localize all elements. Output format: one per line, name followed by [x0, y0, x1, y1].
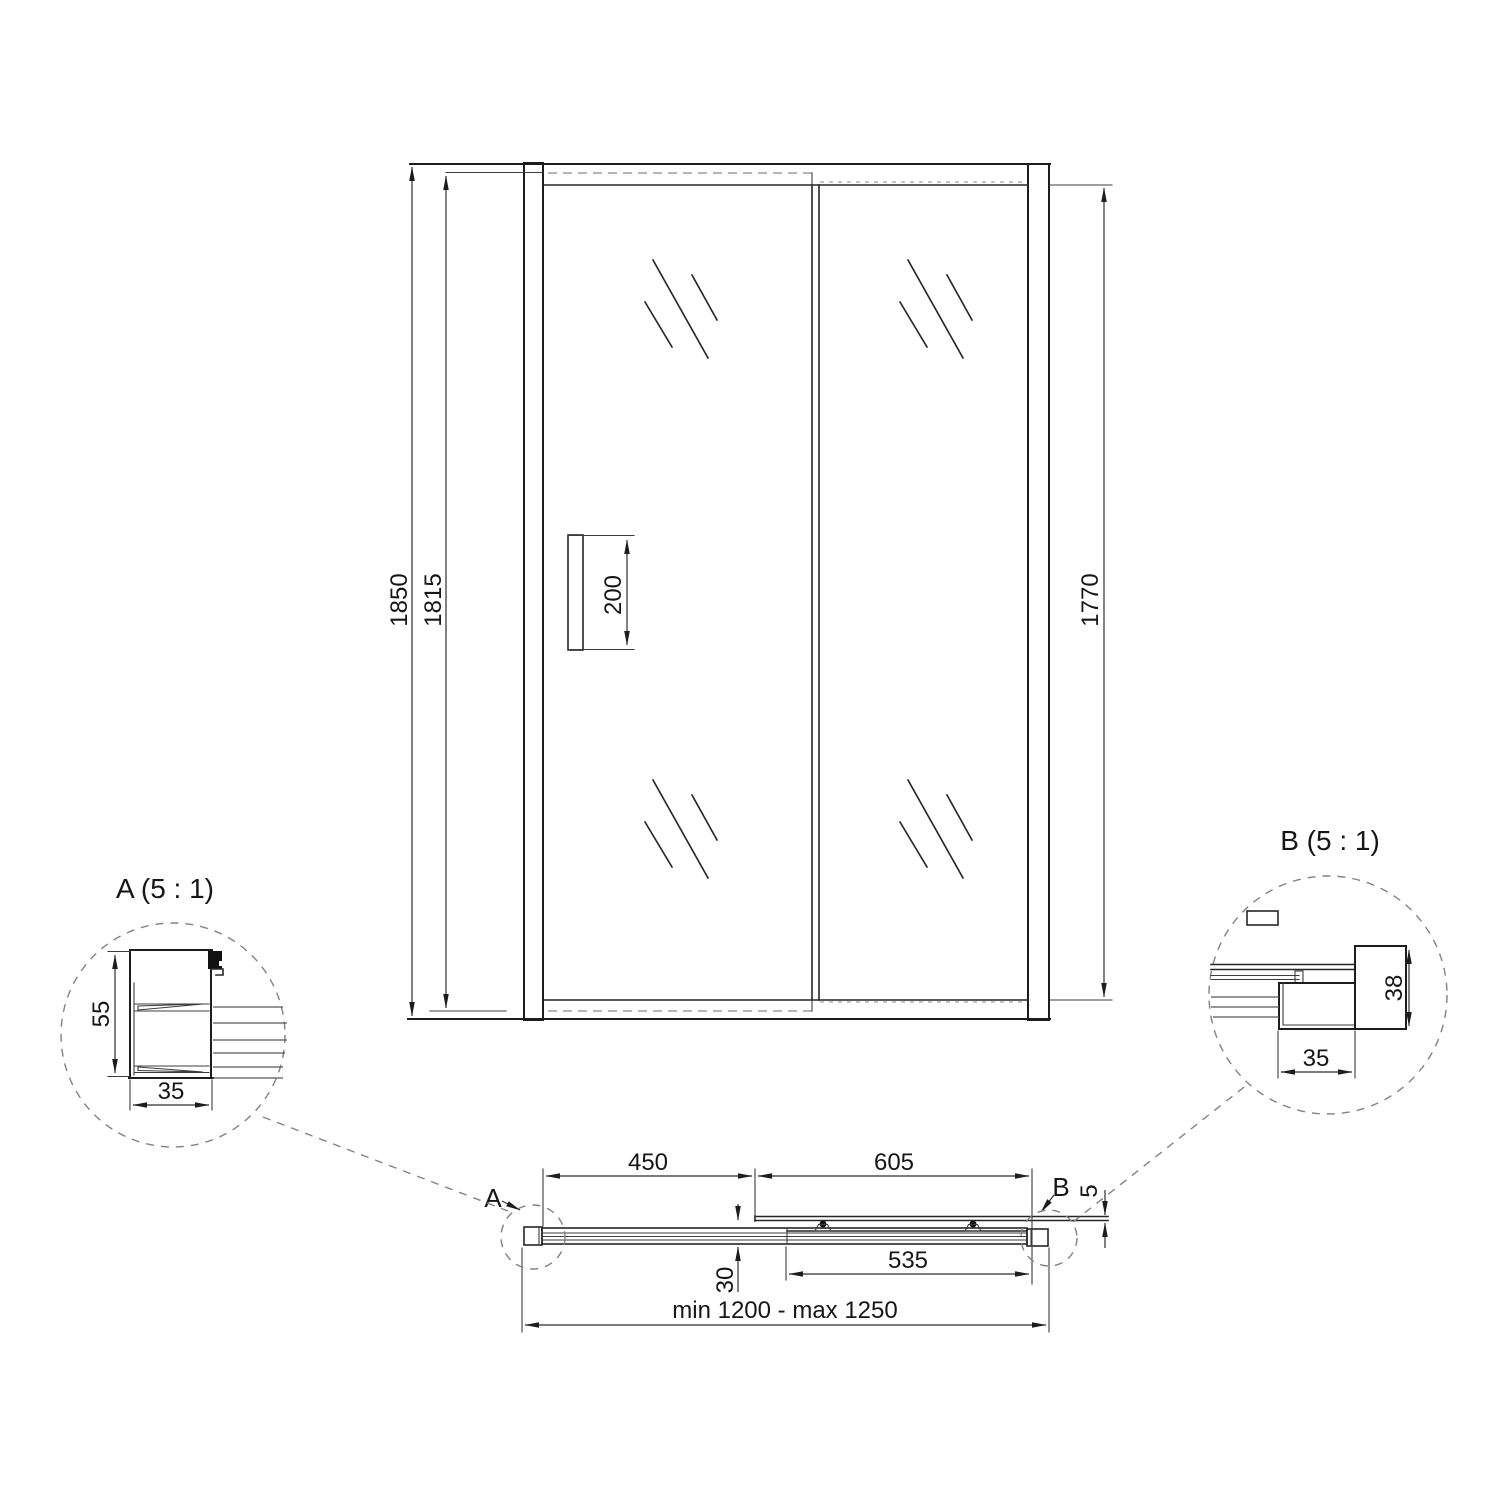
- right-wall-profile: [1028, 164, 1049, 1020]
- detail-a-clip-step: [211, 969, 223, 975]
- glass-hatch-line: [692, 795, 717, 840]
- detail-b-top-bracket: [1247, 911, 1278, 925]
- drawing-svg: 200 1850 1815 1770: [0, 0, 1500, 1500]
- detail-a-clip-notch: [219, 961, 225, 966]
- dim-605-label: 605: [874, 1149, 914, 1176]
- callout-a-leader: [502, 1201, 520, 1210]
- dim-range-label: min 1200 - max 1250: [672, 1297, 897, 1324]
- plan-right-profile: [1027, 1229, 1048, 1246]
- dim-55-label: 55: [88, 1001, 115, 1028]
- callout-b-label: B: [1052, 1172, 1069, 1202]
- dim-200-label: 200: [600, 575, 627, 615]
- shower-door-technical-drawing: 200 1850 1815 1770: [0, 0, 1500, 1500]
- glass-hatch-line: [692, 275, 717, 320]
- detail-a-title: A (5 : 1): [116, 873, 214, 904]
- detail-b-door-profile: [1279, 983, 1355, 1029]
- glass-hatch-line: [900, 822, 927, 867]
- callout-b-connector: [1073, 1084, 1248, 1222]
- callout-a-label: A: [484, 1183, 502, 1213]
- detail-a: A (5 : 1) 55 35: [61, 873, 287, 1147]
- detail-a-seal-wedge: [138, 1067, 203, 1072]
- plan-view: 450 605 30 5 535 min 1200 - max 1250 A B: [263, 1084, 1248, 1332]
- dim-1815-label: 1815: [420, 573, 447, 626]
- dim-35a-label: 35: [158, 1078, 185, 1105]
- glass-hatch-line: [645, 822, 672, 867]
- glass-hatch-line: [900, 302, 927, 347]
- detail-a-clip: [208, 951, 222, 969]
- door-handle: [568, 535, 583, 650]
- detail-b-title: B (5 : 1): [1280, 825, 1380, 856]
- detail-a-seal-wedge: [138, 1004, 203, 1010]
- front-view: 200 1850 1815 1770: [386, 163, 1112, 1020]
- left-wall-profile: [524, 163, 543, 1020]
- glass-hatch-line: [645, 302, 672, 347]
- glass-hatch-line: [908, 780, 963, 878]
- detail-b-circle: [1209, 876, 1447, 1114]
- dim-1850-label: 1850: [386, 573, 413, 626]
- detail-a-circle: [61, 923, 285, 1147]
- glass-hatch-line: [908, 260, 963, 358]
- dim-535-label: 535: [888, 1247, 928, 1274]
- roller-symbol: [815, 1221, 831, 1232]
- detail-b: B (5 : 1) 38 35: [1209, 825, 1447, 1114]
- detail-b-seal-step: [1295, 971, 1303, 983]
- callout-a-connector: [263, 1117, 508, 1211]
- glass-hatch-line: [653, 780, 708, 878]
- dim-5-label: 5: [1076, 1184, 1103, 1197]
- dim-30-label: 30: [712, 1267, 739, 1294]
- callout-b-leader: [1041, 1195, 1054, 1212]
- dim-1770-label: 1770: [1077, 573, 1104, 626]
- glass-hatch-group: [645, 260, 972, 878]
- dim-35b-label: 35: [1303, 1045, 1330, 1072]
- glass-hatch-line: [947, 275, 972, 320]
- dim-450-label: 450: [628, 1149, 668, 1176]
- dim-38-label: 38: [1381, 975, 1408, 1002]
- roller-symbol: [965, 1221, 981, 1232]
- glass-hatch-line: [653, 260, 708, 358]
- glass-hatch-line: [947, 795, 972, 840]
